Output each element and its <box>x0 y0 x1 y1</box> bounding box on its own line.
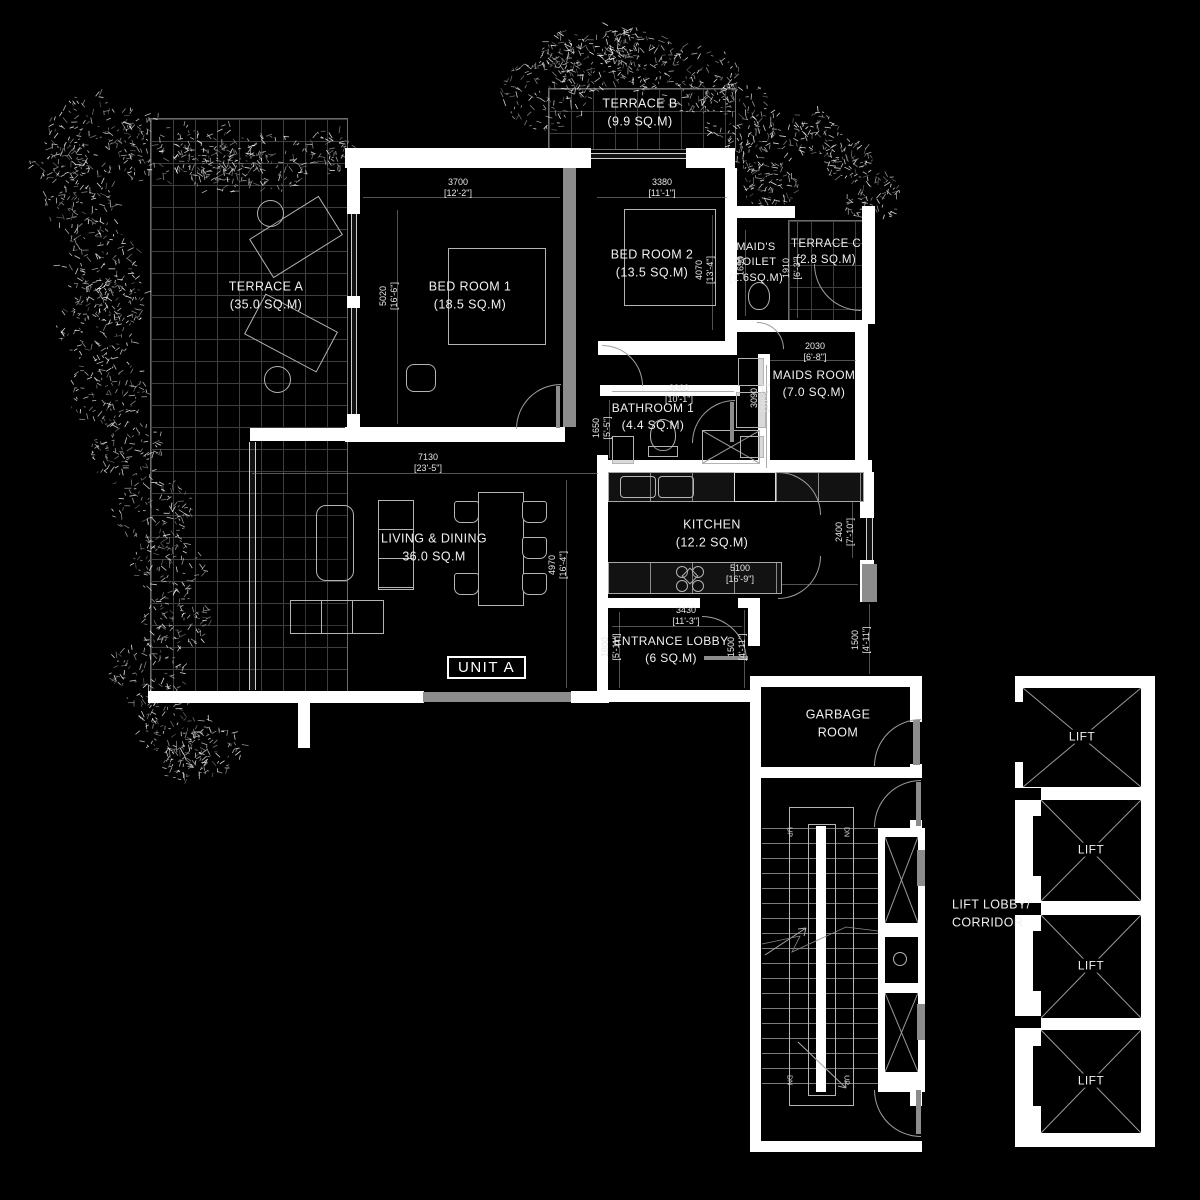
wall-opening <box>1015 702 1023 762</box>
wall-opening <box>1033 1046 1041 1106</box>
door-arc-corridor-bottom <box>874 1090 921 1137</box>
dining-chair <box>454 573 479 595</box>
wall-opening <box>1015 1016 1041 1028</box>
wall-segment <box>347 414 360 428</box>
dimension-line <box>397 210 398 424</box>
dim-ft: [11'-3"] <box>672 616 699 627</box>
dim-bedroom2-height: 4070[13'-4"] <box>694 256 717 284</box>
toilet-tank <box>648 446 678 457</box>
hob-burner <box>676 580 688 592</box>
dim-mm: 1500 <box>850 630 861 650</box>
stair-up-label: UP <box>843 1075 850 1085</box>
room-area: (12.2 SQ.M) <box>676 534 748 552</box>
dim-maids-room-height: 3090[10'-2"] <box>749 384 772 412</box>
lift-text: LIFT <box>1066 730 1098 744</box>
dim-lobby-width: 3430[11'-3"] <box>672 605 699 628</box>
dim-mm: 1500 <box>726 637 737 657</box>
dim-ft: [13'-4"] <box>705 256 716 284</box>
dim-mm: 7130 <box>418 452 438 463</box>
stair-spine-outline <box>808 824 836 1096</box>
dim-bedroom1-width: 3700[12'-2"] <box>444 177 472 200</box>
room-label-bedroom2: BED ROOM 2 (13.5 SQ.M) <box>611 247 694 282</box>
wall-segment <box>735 206 795 218</box>
wall-segment <box>862 206 875 324</box>
wall-segment <box>347 168 360 214</box>
dim-living-height: 4970[16'-4"] <box>547 551 570 579</box>
dim-ft: [16'-4"] <box>558 551 569 579</box>
wall-segment <box>750 676 922 687</box>
dim-ft: [5'-11"] <box>611 633 622 660</box>
wall-segment <box>345 427 565 442</box>
wall-segment <box>608 690 761 702</box>
dim-mm: 3090 <box>749 388 760 408</box>
room-name: LIVING & DINING <box>381 531 487 549</box>
dim-lobby-door: 1500[4'-11"] <box>726 633 749 660</box>
room-area: (9.9 SQ.M) <box>602 113 677 131</box>
wall-segment <box>148 691 424 703</box>
dim-mm: 4070 <box>694 260 705 280</box>
door-arc-bedroom1 <box>516 384 561 429</box>
wall-segment <box>298 703 310 748</box>
dim-kitchen-width: 5100[16'-9"] <box>726 563 754 586</box>
room-label-living-dining: LIVING & DINING 36.0 SQ.M <box>381 531 487 566</box>
room-label-terrace-a: TERRACE A (35.0 SQ.M) <box>229 279 303 314</box>
bedroom1-west-window <box>351 214 357 414</box>
room-name: BED ROOM 2 <box>611 247 694 265</box>
door-arc-garbage <box>874 719 921 766</box>
dim-mm: 3380 <box>652 177 672 188</box>
dim-mm: 2030 <box>805 341 825 352</box>
dim-east-gap: 1500[4'-11"] <box>850 626 873 653</box>
unit-a-tag: UNIT A <box>447 656 526 679</box>
room-name: TERRACE B <box>602 96 677 114</box>
terrace-b-window <box>588 153 686 159</box>
wall-segment <box>910 676 922 722</box>
floor-plan: TERRACE B (9.9 SQ.M) TERRACE A (35.0 SQ.… <box>0 0 1200 1200</box>
duct-shaft <box>885 993 918 1072</box>
wall-segment <box>686 148 735 168</box>
stair-dn-label: DN <box>843 827 850 837</box>
wall-segment <box>855 332 868 478</box>
dim-lobby-height: 1800[5'-11"] <box>600 633 623 660</box>
wash-basin <box>612 436 634 464</box>
dim-ft: [4'-11"] <box>861 626 872 653</box>
side-table <box>257 200 284 227</box>
dim-mm: 5100 <box>730 563 750 574</box>
dim-bedroom2-width: 3380[11'-1"] <box>648 177 675 200</box>
hob-burner <box>692 580 704 592</box>
dim-kitchen-height: 2400[7'-10"] <box>834 518 857 546</box>
room-area: (6 SQ.M) <box>614 650 729 667</box>
dim-terrace-c-height: 1910[6'-3"] <box>781 257 804 280</box>
duct-shaft <box>885 837 918 923</box>
stair-up-label: UP <box>786 827 793 837</box>
wall-segment <box>345 148 591 168</box>
dim-ft: [16'-6"] <box>389 282 400 310</box>
dimension-line <box>766 365 767 468</box>
room-label-maids-room: MAIDS ROOM (7.0 SQ.M) <box>773 367 856 401</box>
wall-opening <box>1015 788 1041 800</box>
room-name: ENTRANCE LOBBY <box>614 633 729 650</box>
door-arc-corridor-top <box>874 780 921 827</box>
dim-mm: 1650 <box>591 418 602 438</box>
room-name: TERRACE A <box>229 279 303 297</box>
lift-label: LIFT <box>1075 1073 1107 1090</box>
room-label-entrance-lobby: ENTRANCE LOBBY (6 SQ.M) <box>614 633 729 667</box>
dim-ft: [10'-2"] <box>760 384 771 412</box>
room-label-kitchen: KITCHEN (12.2 SQ.M) <box>676 517 748 552</box>
partition-or-door-leaf <box>563 168 576 427</box>
dimension-line <box>566 480 567 688</box>
partition-or-door-leaf <box>862 564 877 602</box>
wall-segment <box>760 767 912 778</box>
dim-bathroom-width: 3060[10'-1"] <box>665 383 693 406</box>
shaft-cross <box>885 993 918 1072</box>
dim-mm: 1910 <box>781 258 792 278</box>
dining-chair <box>522 501 547 523</box>
dim-ft: [10'-1"] <box>665 394 693 405</box>
stair-dn-label: DN <box>786 1075 793 1085</box>
partition-or-door-leaf <box>423 692 571 702</box>
room-area: (18.5 SQ.M) <box>429 296 512 314</box>
room-area: (35.0 SQ.M) <box>229 296 303 314</box>
dim-bedroom1-height: 5020[16'-6"] <box>378 282 401 310</box>
room-name: LIFT LOBBY/ CORRIDOR <box>952 897 1040 932</box>
room-name: MAIDS ROOM <box>773 367 856 384</box>
dim-ft: [5'-5"] <box>602 417 613 440</box>
room-area: (7.0 SQ.M) <box>773 384 856 401</box>
dim-mm: 3060 <box>669 383 689 394</box>
appliance <box>740 436 764 458</box>
dim-maids-toilet-height: 1690 <box>735 256 746 276</box>
dim-ft: [6'-8"] <box>804 352 827 363</box>
side-table <box>264 366 291 393</box>
appliance <box>738 358 764 386</box>
lift-text: LIFT <box>1075 843 1107 857</box>
dim-ft: [7'-10"] <box>845 518 856 546</box>
wall-segment <box>347 296 360 308</box>
room-label-bedroom1: BED ROOM 1 (18.5 SQ.M) <box>429 279 512 314</box>
door-arc-bathroom1 <box>692 400 735 443</box>
dim-mm: 3700 <box>448 177 468 188</box>
toilet <box>748 282 770 310</box>
dim-mm: 3430 <box>676 605 696 616</box>
dining-chair <box>522 537 547 559</box>
lift-label: LIFT <box>1075 958 1107 975</box>
dim-bathroom-height: 1650[5'-5"] <box>591 417 614 440</box>
wall-segment <box>727 320 868 332</box>
room-label-lift-lobby: LIFT LOBBY/ CORRIDOR <box>952 897 1040 932</box>
door-arc-kitchen <box>778 556 821 599</box>
wall-segment <box>738 598 760 608</box>
lift-text: LIFT <box>1075 959 1107 973</box>
lift-label: LIFT <box>1066 729 1098 746</box>
wall-segment <box>750 1141 922 1152</box>
wall-segment <box>748 608 760 646</box>
dim-mm: 1800 <box>600 637 611 657</box>
bedroom1-stool <box>406 364 436 392</box>
room-area: (13.5 SQ.M) <box>611 264 694 282</box>
dim-mm: 5020 <box>378 286 389 306</box>
living-west-window <box>249 442 256 690</box>
lift-text: LIFT <box>1075 1074 1107 1088</box>
partition-or-door-leaf <box>917 1004 925 1040</box>
armchair <box>316 505 354 581</box>
room-label-garbage-room: GARBAGE ROOM <box>796 707 880 742</box>
dim-ft: [23'-5"] <box>414 463 442 474</box>
partition-or-door-leaf <box>917 850 925 886</box>
sofa <box>290 600 384 634</box>
dim-ft: [6'-3"] <box>792 257 803 280</box>
dim-mm: 4970 <box>547 555 558 575</box>
shaft-cross <box>885 837 918 923</box>
dim-mm: 1690 <box>735 256 746 276</box>
dining-chair <box>454 501 479 523</box>
dim-mm: 2400 <box>834 522 845 542</box>
lift-label: LIFT <box>1075 842 1107 859</box>
room-area: 36.0 SQ.M <box>381 548 487 566</box>
floor-drain <box>893 952 907 966</box>
oven <box>734 472 776 502</box>
kitchen-sink <box>620 476 656 498</box>
wall-segment <box>250 428 353 441</box>
room-name: BED ROOM 1 <box>429 279 512 297</box>
dim-maids-room-width: 2030[6'-8"] <box>804 341 827 364</box>
kitchen-sink <box>658 476 694 498</box>
dim-ft: [11'-1"] <box>648 188 675 199</box>
dining-chair <box>522 573 547 595</box>
dim-ft: [16'-9"] <box>726 574 754 585</box>
dim-ft: [4'-11"] <box>737 633 748 660</box>
room-label-terrace-b: TERRACE B (9.9 SQ.M) <box>602 96 677 131</box>
room-name: KITCHEN <box>676 517 748 535</box>
dim-living-width: 7130[23'-5"] <box>414 452 442 475</box>
wall-segment <box>750 676 761 1152</box>
wall-opening <box>1033 931 1041 991</box>
wall-opening <box>1033 816 1041 876</box>
room-name: GARBAGE ROOM <box>796 707 880 742</box>
room-area: (4.4 SQ.M) <box>612 417 694 434</box>
room-name: TERRACE C <box>791 236 861 252</box>
dim-ft: [12'-2"] <box>444 188 472 199</box>
